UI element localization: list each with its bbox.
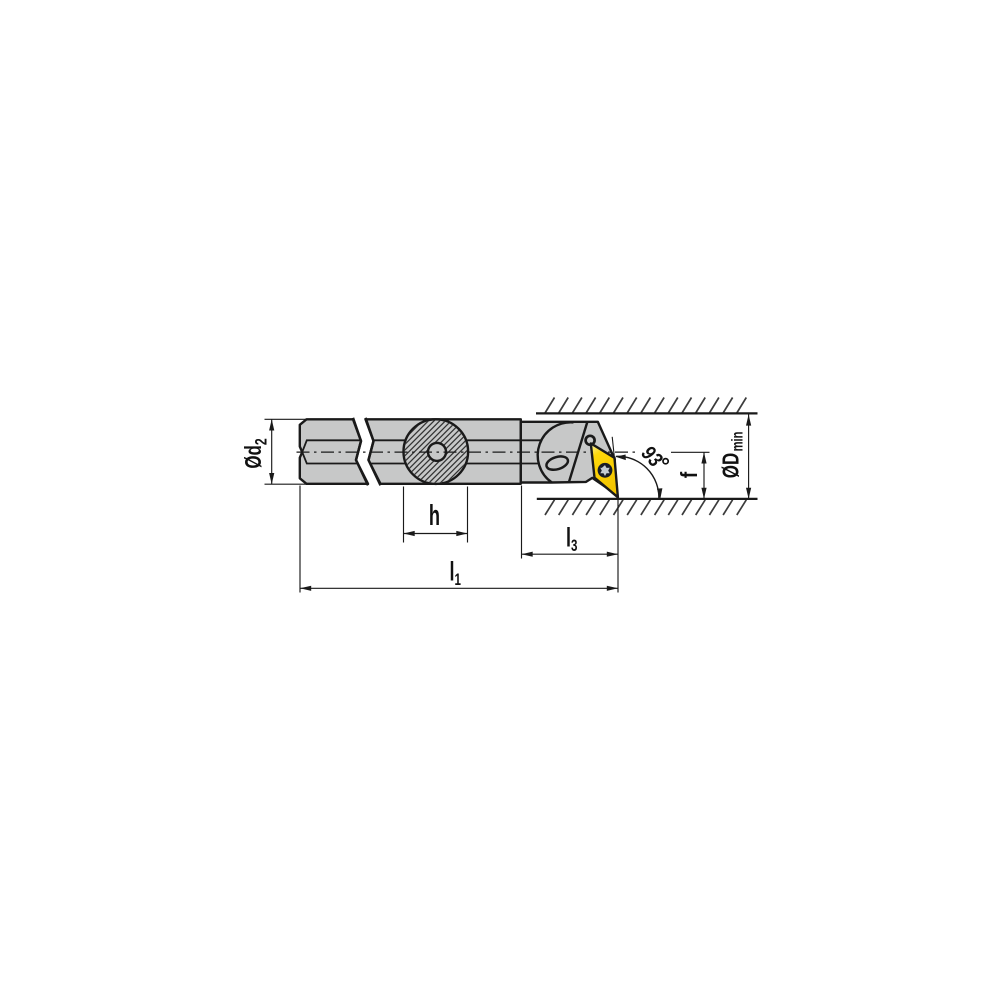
svg-text:h: h	[429, 500, 440, 532]
svg-text:f: f	[677, 471, 703, 478]
